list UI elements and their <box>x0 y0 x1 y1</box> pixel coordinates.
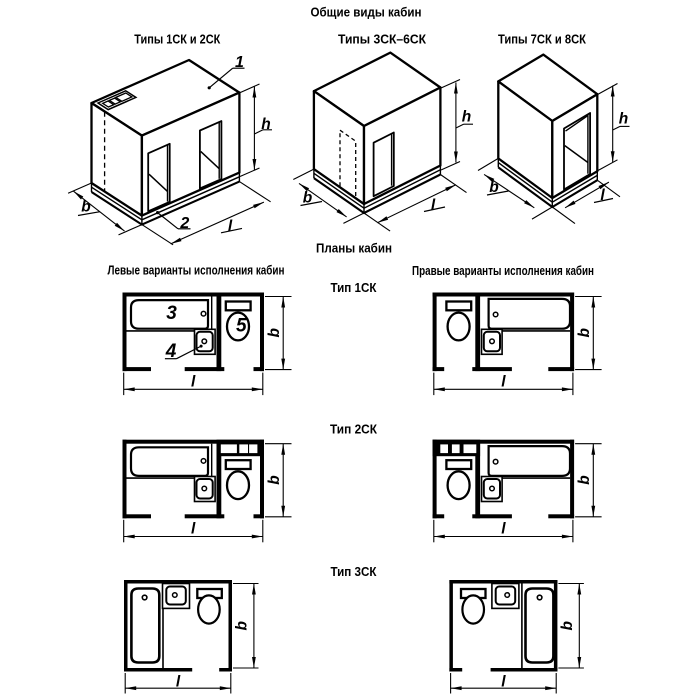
svg-text:l: l <box>600 187 605 204</box>
svg-text:Типы 3СК–6СК: Типы 3СК–6СК <box>338 31 426 46</box>
svg-text:l: l <box>191 521 196 538</box>
svg-text:Планы кабин: Планы кабин <box>316 241 392 256</box>
svg-text:l: l <box>501 373 506 390</box>
svg-text:3: 3 <box>166 303 177 324</box>
svg-text:b: b <box>303 189 313 206</box>
svg-text:b: b <box>576 475 593 485</box>
svg-text:l: l <box>501 521 506 538</box>
svg-text:h: h <box>462 108 471 125</box>
svg-text:b: b <box>266 328 283 338</box>
svg-text:b: b <box>81 199 91 216</box>
svg-text:l: l <box>176 674 181 691</box>
svg-text:l: l <box>431 197 436 214</box>
svg-text:l: l <box>228 218 233 235</box>
svg-text:5: 5 <box>236 316 247 337</box>
svg-text:b: b <box>266 475 283 485</box>
svg-text:h: h <box>619 111 628 128</box>
svg-text:1: 1 <box>235 54 244 71</box>
svg-text:b: b <box>576 328 593 338</box>
svg-text:Типы 1СК и 2СК: Типы 1СК и 2СК <box>134 31 220 46</box>
svg-text:Тип 1СК: Тип 1СК <box>331 280 377 295</box>
svg-text:Типы 7СК и 8СК: Типы 7СК и 8СК <box>498 31 586 46</box>
svg-text:Тип 2СК: Тип 2СК <box>330 422 377 437</box>
svg-text:l: l <box>191 373 196 390</box>
svg-text:Правые варианты исполнения каб: Правые варианты исполнения кабин <box>412 263 594 278</box>
svg-text:b: b <box>559 620 576 630</box>
svg-text:b: b <box>489 179 499 196</box>
svg-text:h: h <box>261 116 270 133</box>
svg-text:Левые варианты исполнения каби: Левые варианты исполнения кабин <box>108 262 285 277</box>
svg-text:Тип 3СК: Тип 3СК <box>331 564 377 579</box>
svg-text:b: b <box>234 620 251 630</box>
svg-text:Общие виды кабин: Общие виды кабин <box>311 5 422 20</box>
svg-text:2: 2 <box>179 215 189 232</box>
svg-text:l: l <box>501 674 506 691</box>
